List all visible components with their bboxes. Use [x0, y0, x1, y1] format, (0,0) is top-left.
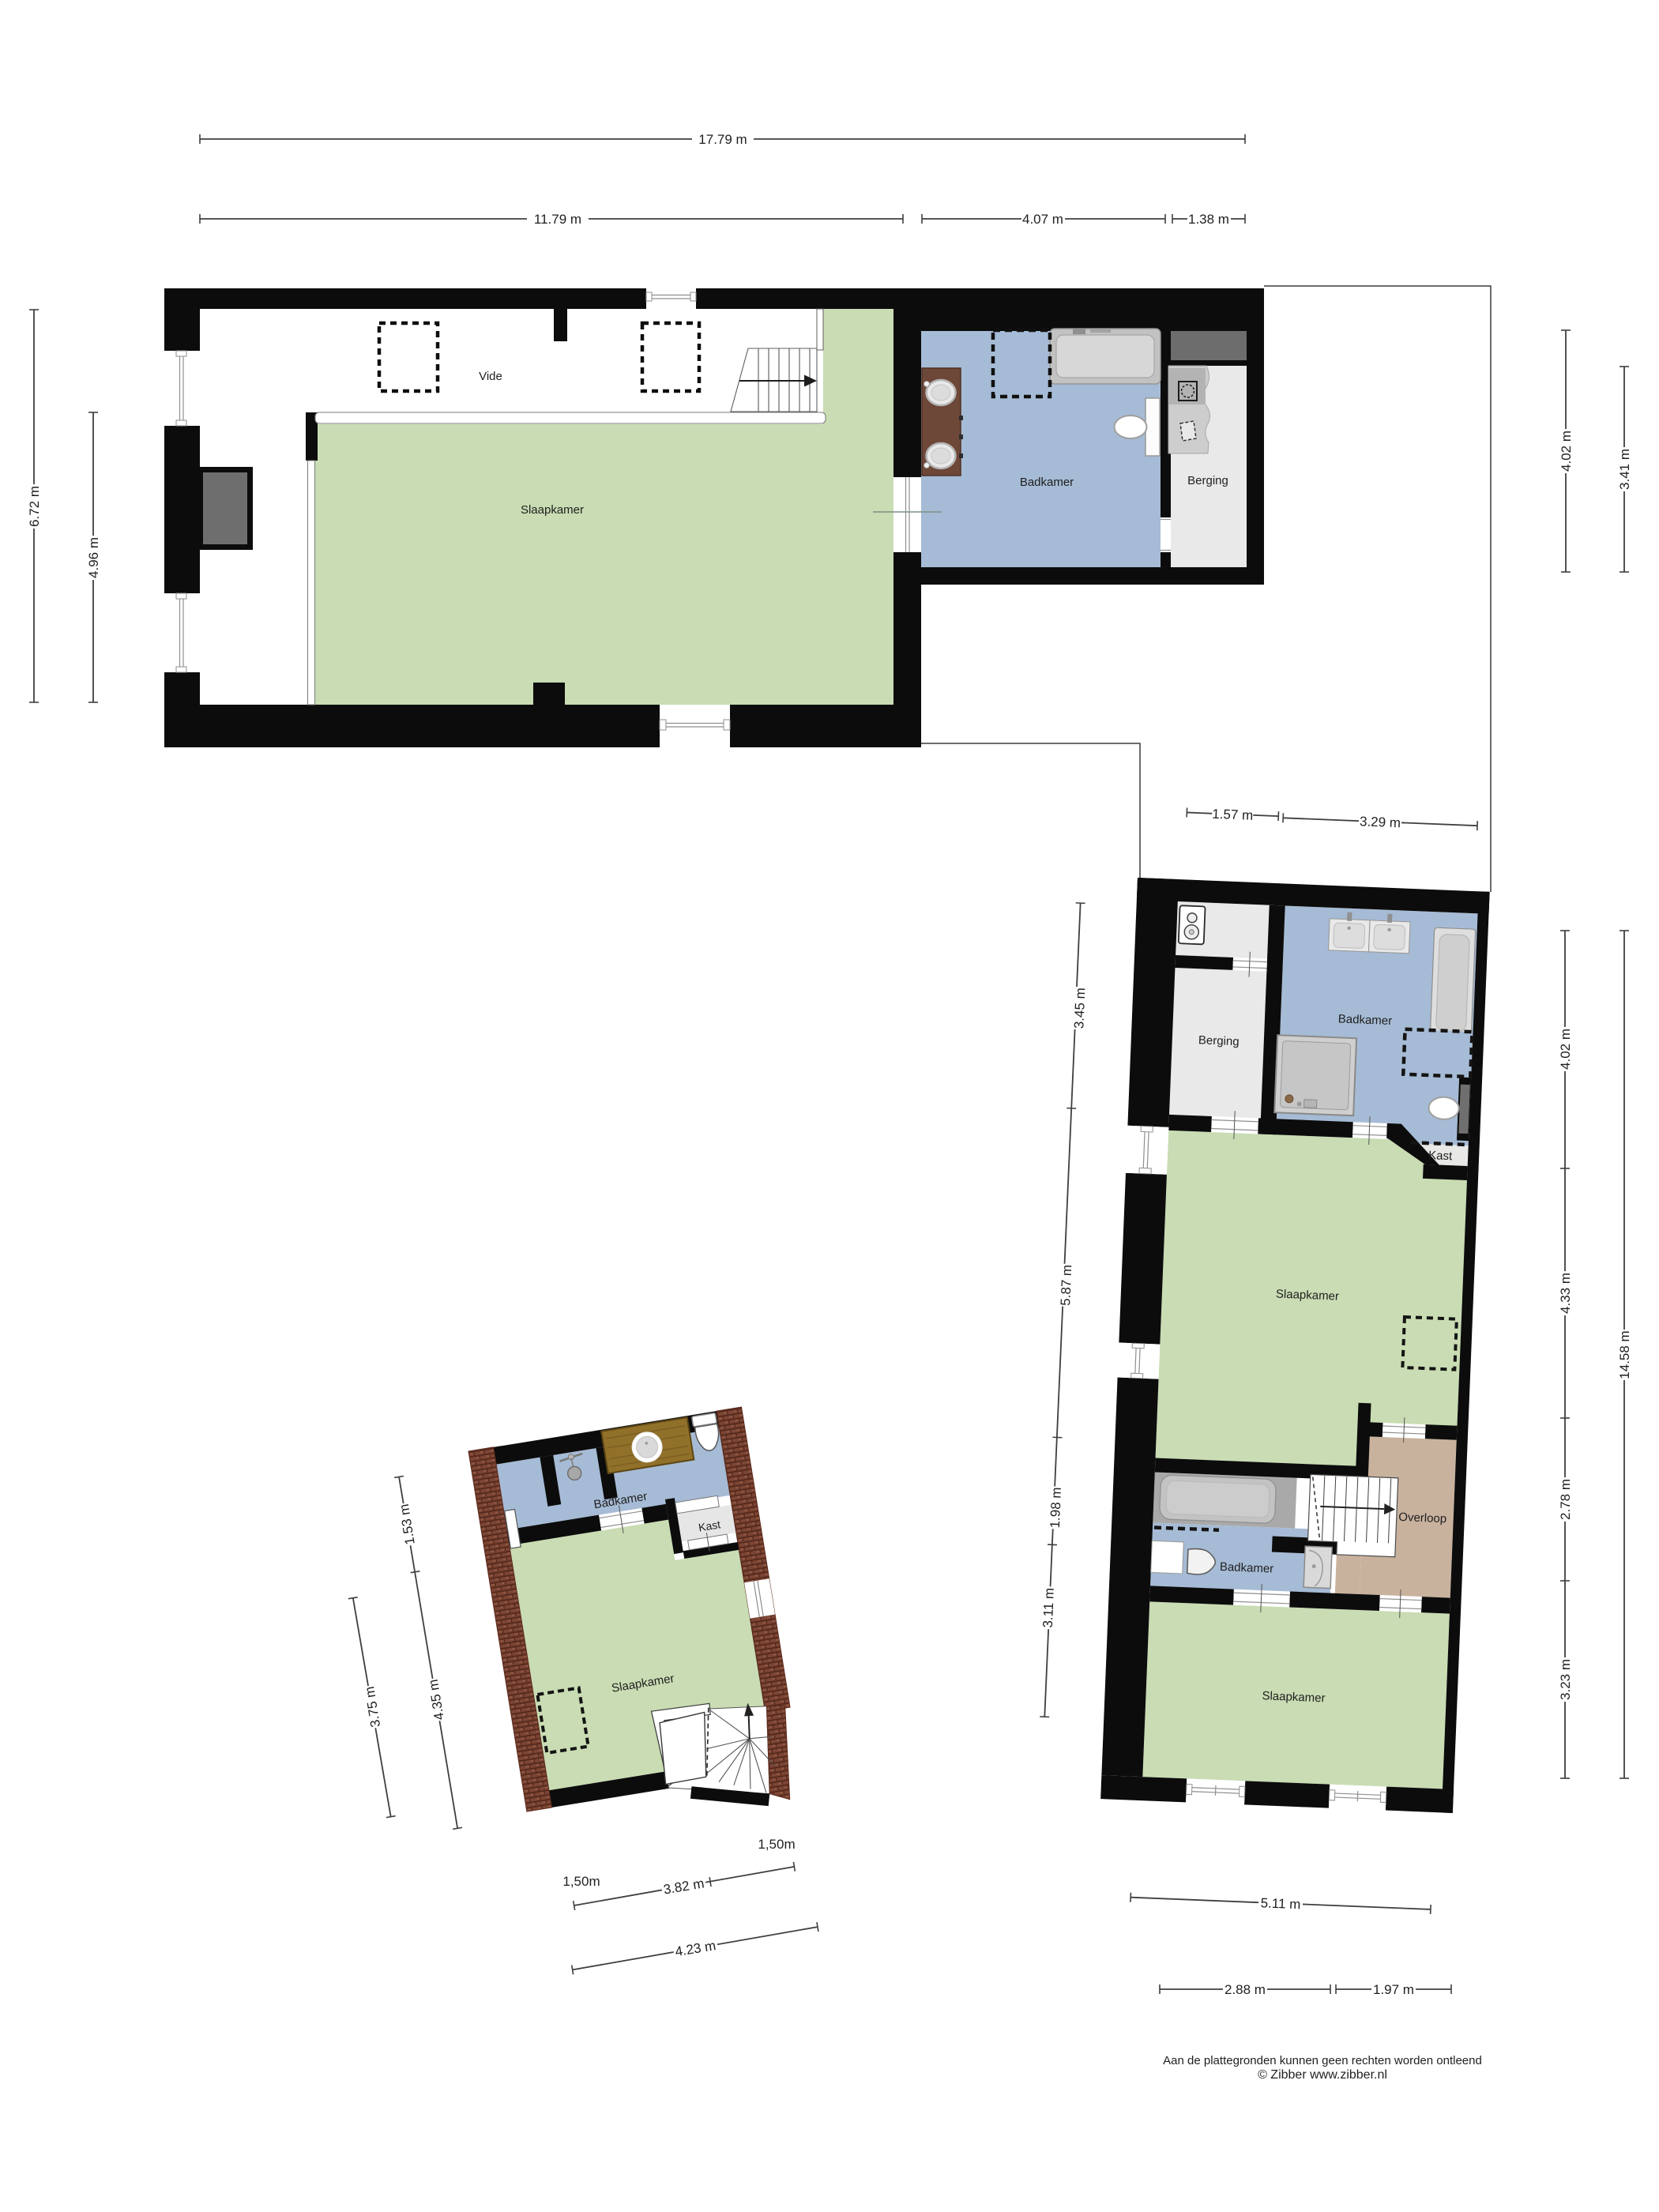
svg-text:5.11 m: 5.11 m	[1260, 1895, 1300, 1912]
svg-text:Slaapkamer: Slaapkamer	[521, 503, 584, 517]
svg-text:Overloop: Overloop	[1398, 1510, 1447, 1525]
svg-text:4.07 m: 4.07 m	[1022, 212, 1063, 227]
svg-text:4.96 m: 4.96 m	[86, 537, 101, 578]
svg-text:5.87 m: 5.87 m	[1058, 1264, 1074, 1306]
svg-text:Kast: Kast	[1428, 1149, 1454, 1163]
svg-text:Badkamer: Badkamer	[1020, 476, 1074, 489]
svg-text:11.79 m: 11.79 m	[534, 212, 581, 227]
svg-text:1.38 m: 1.38 m	[1188, 212, 1229, 227]
svg-text:1,50m: 1,50m	[758, 1837, 795, 1852]
svg-text:Berging: Berging	[1198, 1033, 1240, 1048]
svg-text:1.97 m: 1.97 m	[1373, 1982, 1414, 1997]
svg-text:3.41 m: 3.41 m	[1617, 449, 1632, 490]
svg-text:Slaapkamer: Slaapkamer	[1276, 1287, 1340, 1303]
svg-text:2.78 m: 2.78 m	[1558, 1479, 1573, 1520]
svg-text:14.58 m: 14.58 m	[1617, 1330, 1632, 1379]
svg-text:6.72 m: 6.72 m	[27, 486, 42, 527]
svg-text:4.33 m: 4.33 m	[1558, 1273, 1573, 1314]
svg-text:17.79 m: 17.79 m	[698, 132, 747, 147]
svg-text:Badkamer: Badkamer	[1337, 1012, 1392, 1028]
svg-text:4.02 m: 4.02 m	[1558, 1029, 1573, 1070]
svg-text:4.02 m: 4.02 m	[1559, 431, 1574, 472]
svg-text:Aan de plattegronden kunnen ge: Aan de plattegronden kunnen geen rechten…	[1163, 2054, 1482, 2067]
svg-text:Vide: Vide	[479, 370, 502, 383]
svg-text:© Zibber www.zibber.nl: © Zibber www.zibber.nl	[1258, 2068, 1387, 2082]
svg-text:2.88 m: 2.88 m	[1224, 1982, 1266, 1997]
svg-text:1.98 m: 1.98 m	[1048, 1487, 1064, 1529]
svg-text:Badkamer: Badkamer	[1220, 1560, 1274, 1576]
svg-text:3.29 m: 3.29 m	[1360, 814, 1401, 830]
svg-text:3.45 m: 3.45 m	[1071, 987, 1088, 1029]
svg-text:Berging: Berging	[1187, 474, 1228, 487]
svg-text:1,50m: 1,50m	[562, 1874, 600, 1889]
svg-text:1.57 m: 1.57 m	[1212, 807, 1254, 823]
svg-text:Slaapkamer: Slaapkamer	[1262, 1689, 1326, 1705]
svg-text:3.23 m: 3.23 m	[1558, 1659, 1573, 1700]
svg-text:3.11 m: 3.11 m	[1040, 1588, 1057, 1628]
